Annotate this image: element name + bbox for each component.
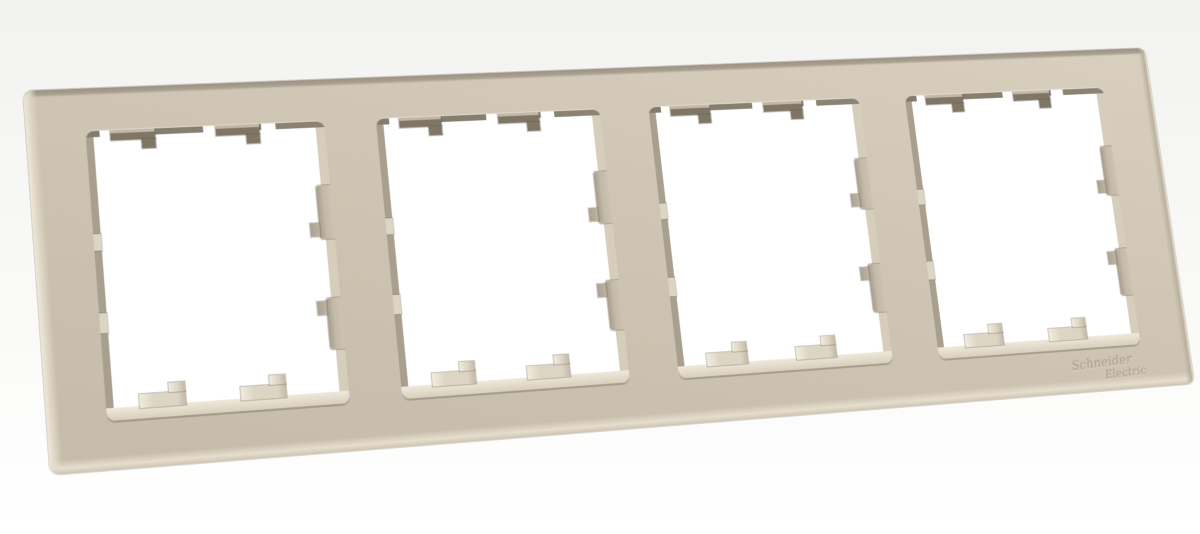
frame-window-opening <box>905 88 1141 359</box>
window-inner-wall-right <box>591 109 630 382</box>
frame-window-opening <box>85 121 350 421</box>
window-edge-slot <box>486 114 499 122</box>
window-inner-wall-left <box>648 107 686 379</box>
top-mounting-tab <box>925 94 963 105</box>
bottom-mounting-tab <box>527 363 571 379</box>
perspective-wrapper: Schneider Electric <box>50 62 1200 428</box>
frame-bottom-bevel <box>49 371 1194 475</box>
right-mounting-claw <box>593 171 612 223</box>
window-inner-wall-top <box>85 121 324 137</box>
product-photo-stage: Schneider Electric <box>0 0 1200 534</box>
left-mounting-nub <box>93 234 102 251</box>
frame-top-bevel <box>23 48 1146 98</box>
window-inner-wall-left <box>85 131 114 421</box>
window-inner-wall-bottom <box>401 370 630 399</box>
bottom-mounting-tab <box>240 384 286 401</box>
window-inner-wall-top <box>376 109 601 125</box>
frame-right-bevel <box>1137 48 1194 384</box>
bottom-mounting-tab <box>432 370 477 386</box>
top-mounting-tab <box>763 101 803 112</box>
top-mounting-tab <box>1013 90 1050 101</box>
window-edge-slot <box>99 130 110 139</box>
window-inner-wall-right <box>315 121 350 404</box>
window-edge-slot <box>261 123 276 131</box>
right-mounting-claw <box>1115 248 1134 295</box>
top-mounting-tab <box>110 128 155 140</box>
frame-window-opening <box>376 109 630 399</box>
right-mounting-claw <box>605 280 624 330</box>
window-inner-wall-bottom <box>678 351 893 379</box>
left-mounting-nub <box>392 295 401 315</box>
left-mounting-nub <box>917 189 925 204</box>
left-mounting-nub <box>385 218 394 234</box>
window-inner-wall-bottom <box>106 391 350 421</box>
left-mounting-nub <box>659 203 667 219</box>
window-edge-slot <box>389 118 400 126</box>
window-edge-slot <box>752 102 764 110</box>
window-inner-wall-right <box>851 98 893 363</box>
frame-window-opening <box>648 98 893 378</box>
window-edge-slot <box>203 126 216 135</box>
right-mounting-claw <box>854 158 873 209</box>
wall-plate-frame: Schneider Electric <box>23 48 1195 475</box>
bottom-mounting-tab <box>139 391 186 408</box>
window-inner-wall-right <box>1096 88 1141 345</box>
window-edge-slot <box>803 100 817 107</box>
right-mounting-claw <box>316 185 335 239</box>
right-mounting-claw <box>1100 146 1119 195</box>
window-edge-slot <box>1050 90 1063 97</box>
window-edge-slot <box>540 111 554 118</box>
window-inner-wall-left <box>376 119 410 400</box>
window-inner-wall-left <box>905 96 946 359</box>
top-mounting-tab <box>498 112 540 124</box>
top-mounting-tab <box>670 105 710 116</box>
right-mounting-claw <box>326 297 345 349</box>
left-mounting-nub <box>99 313 108 333</box>
right-mounting-claw <box>868 264 887 313</box>
left-mounting-nub <box>926 261 935 279</box>
left-mounting-nub <box>668 277 677 296</box>
top-mounting-tab <box>215 124 259 136</box>
top-mounting-tab <box>399 116 442 128</box>
frame-front-face: Schneider Electric <box>23 48 1195 475</box>
frame-left-bevel <box>23 90 63 475</box>
